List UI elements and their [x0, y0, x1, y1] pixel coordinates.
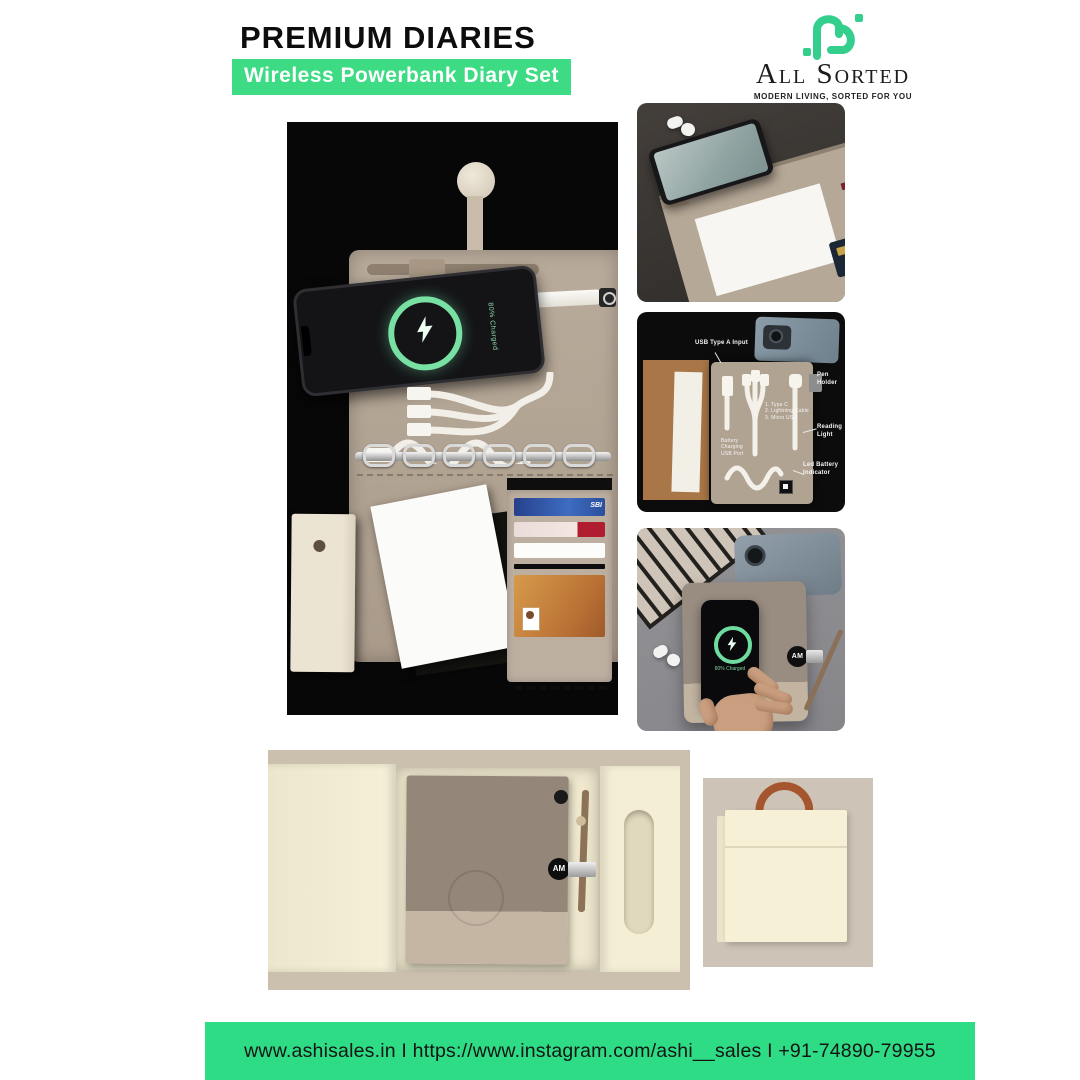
label-led-battery: Led Battery Indicator [803, 462, 843, 477]
lightning-bolt-icon [726, 636, 738, 652]
strap-button [554, 790, 568, 804]
card-slot [514, 522, 605, 537]
box-lid-left [268, 764, 396, 972]
binder-ring [563, 444, 595, 467]
bank-card: SBI [514, 498, 605, 516]
giftbox-photo: AM [268, 750, 690, 990]
notepad [695, 183, 842, 296]
hero-product-photo: 80% Charged [287, 122, 618, 715]
label-usb: USB Type A Input [695, 340, 765, 348]
carrier-bag-photo [703, 778, 873, 967]
product-subtitle-badge: Wireless Powerbank Diary Set [232, 59, 571, 95]
box-snap [313, 540, 325, 552]
pen-box [290, 514, 355, 673]
charge-ring [714, 626, 752, 664]
bank-card-label: SBI [590, 502, 602, 509]
label-pen-holder: Pen Holder [817, 372, 843, 387]
photo-card [514, 575, 605, 637]
binder-ring [363, 444, 395, 467]
phone-notch [301, 325, 312, 356]
lightning-bolt-icon [413, 315, 438, 343]
photo-person [522, 607, 540, 631]
diary-in-box [405, 775, 568, 964]
magnetic-clasp [806, 650, 823, 663]
phone-back [754, 317, 839, 364]
brand-tagline: MODERN LIVING, SORTED FOR YOU [748, 92, 918, 101]
bag-body [725, 810, 847, 942]
paper-strip [671, 372, 702, 493]
poster-canvas: PREMIUM DIARIES Wireless Powerbank Diary… [0, 0, 1080, 1080]
led-battery-indicator [779, 480, 793, 494]
earbud [680, 121, 697, 137]
pen [803, 629, 843, 711]
card-stripe [841, 175, 845, 191]
binder-ring [483, 444, 515, 467]
charge-status-text: 80% Charged [486, 302, 499, 362]
pen-button [576, 816, 586, 826]
thumbnail-desk-scene [637, 103, 845, 302]
bag-flap [725, 810, 847, 848]
label-cable-types: 1. Type C 2. Lightning Cable 3. Micro US… [765, 402, 809, 421]
handle-cutout [624, 810, 654, 934]
am-badge: AM [787, 646, 808, 667]
page-title: PREMIUM DIARIES [240, 20, 536, 56]
cable-layout [717, 370, 809, 500]
thumbnail-charging-scene: 80% Charged AM [637, 528, 845, 731]
reading-light-button [603, 292, 616, 305]
strap [467, 196, 483, 250]
brand-name: All Sorted [748, 60, 918, 89]
binder-ring [443, 444, 475, 467]
all-sorted-logo-icon [800, 8, 866, 60]
thumbnail-feature-diagram: USB Type A Input Pen Holder Reading Ligh… [637, 312, 845, 512]
charge-ring [385, 293, 466, 374]
earbud [665, 652, 682, 668]
brand-block: All Sorted MODERN LIVING, SORTED FOR YOU [748, 8, 918, 101]
binder-ring [523, 444, 555, 467]
magnetic-clasp [568, 862, 596, 877]
phone-camera [763, 325, 792, 350]
contact-bar: www.ashisales.in I https://www.instagram… [205, 1022, 975, 1080]
strap-button [457, 162, 495, 200]
am-badge: AM [548, 858, 570, 880]
label-charge-port: Battery Charging USB Port [721, 438, 761, 457]
stitch-seam [357, 474, 613, 476]
wallet-elastic [507, 478, 612, 490]
emboss-circle [448, 870, 504, 926]
binder-ring [403, 444, 435, 467]
divider [514, 564, 605, 569]
card-wallet: SBI [507, 490, 612, 682]
box-lid-right [600, 766, 680, 972]
card-slot [514, 543, 605, 558]
label-reading-light: Reading Light [817, 424, 843, 439]
tablet-camera [744, 545, 766, 567]
stitch-strip [515, 686, 607, 690]
